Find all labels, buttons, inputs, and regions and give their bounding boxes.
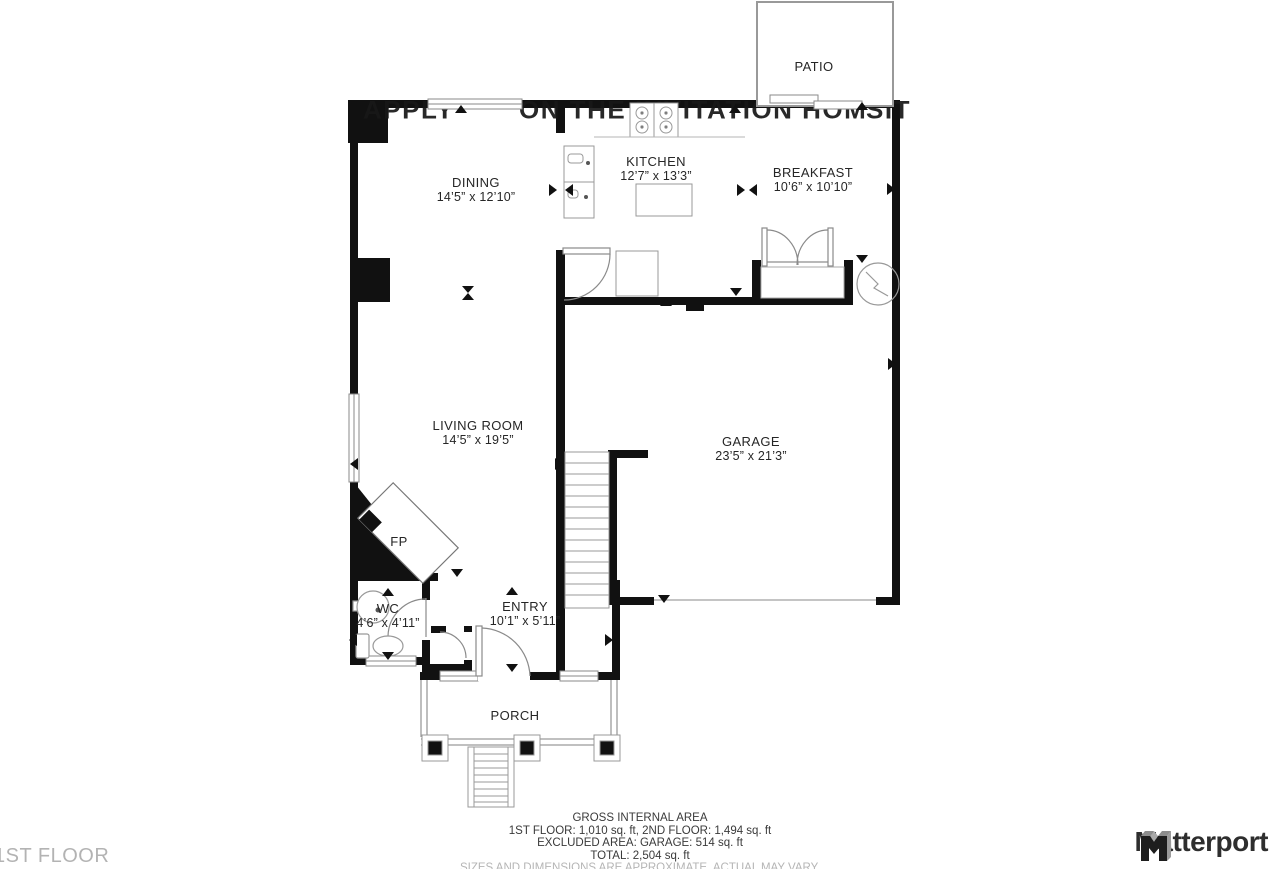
windows <box>349 99 876 681</box>
kitchen-hall-door <box>563 248 610 300</box>
fireplace <box>358 483 458 583</box>
kitchen-sink <box>564 146 594 218</box>
staircase <box>565 452 609 608</box>
dining-window <box>428 99 522 109</box>
kitchen-fixtures <box>564 103 844 298</box>
entry-closet-door <box>440 632 473 660</box>
stove <box>630 103 678 137</box>
area-summary-floors: 1ST FLOOR: 1,010 sq. ft, 2ND FLOOR: 1,49… <box>460 825 820 838</box>
floorplan-detail-layer <box>0 0 1280 869</box>
kitchen-island <box>636 184 692 216</box>
wc-window <box>366 656 416 666</box>
garage-door-opening <box>654 596 876 606</box>
entry-window-left <box>440 671 478 681</box>
area-summary-excluded: EXCLUDED AREA: GARAGE: 514 sq. ft <box>460 837 820 850</box>
area-summary-title: GROSS INTERNAL AREA <box>460 812 820 825</box>
toilet-tank <box>356 634 369 658</box>
floor-label: 1ST FLOOR <box>0 845 109 868</box>
wc-door <box>388 598 431 640</box>
matterport-logo: Matterport <box>1135 826 1268 858</box>
matterport-m-icon <box>1135 826 1173 868</box>
entry-window-right <box>560 671 598 681</box>
porch-steps <box>468 747 514 807</box>
area-summary-disclaimer: SIZES AND DIMENSIONS ARE APPROXIMATE, AC… <box>460 862 820 869</box>
area-summary-total: TOTAL: 2,504 sq. ft <box>460 850 820 863</box>
area-summary: GROSS INTERNAL AREA 1ST FLOOR: 1,010 sq.… <box>460 812 820 869</box>
water-heater <box>857 263 899 305</box>
pantry-cabinet <box>616 251 658 296</box>
wc-fixtures <box>353 591 403 658</box>
patio-outline <box>757 2 893 109</box>
floorplan-page: APPLY ON THE INVITATION HOM SIT <box>0 0 1280 869</box>
front-door <box>476 626 530 681</box>
mud-bench <box>761 267 844 298</box>
dimension-ticks <box>349 102 896 672</box>
breakfast-french-doors <box>762 228 833 268</box>
